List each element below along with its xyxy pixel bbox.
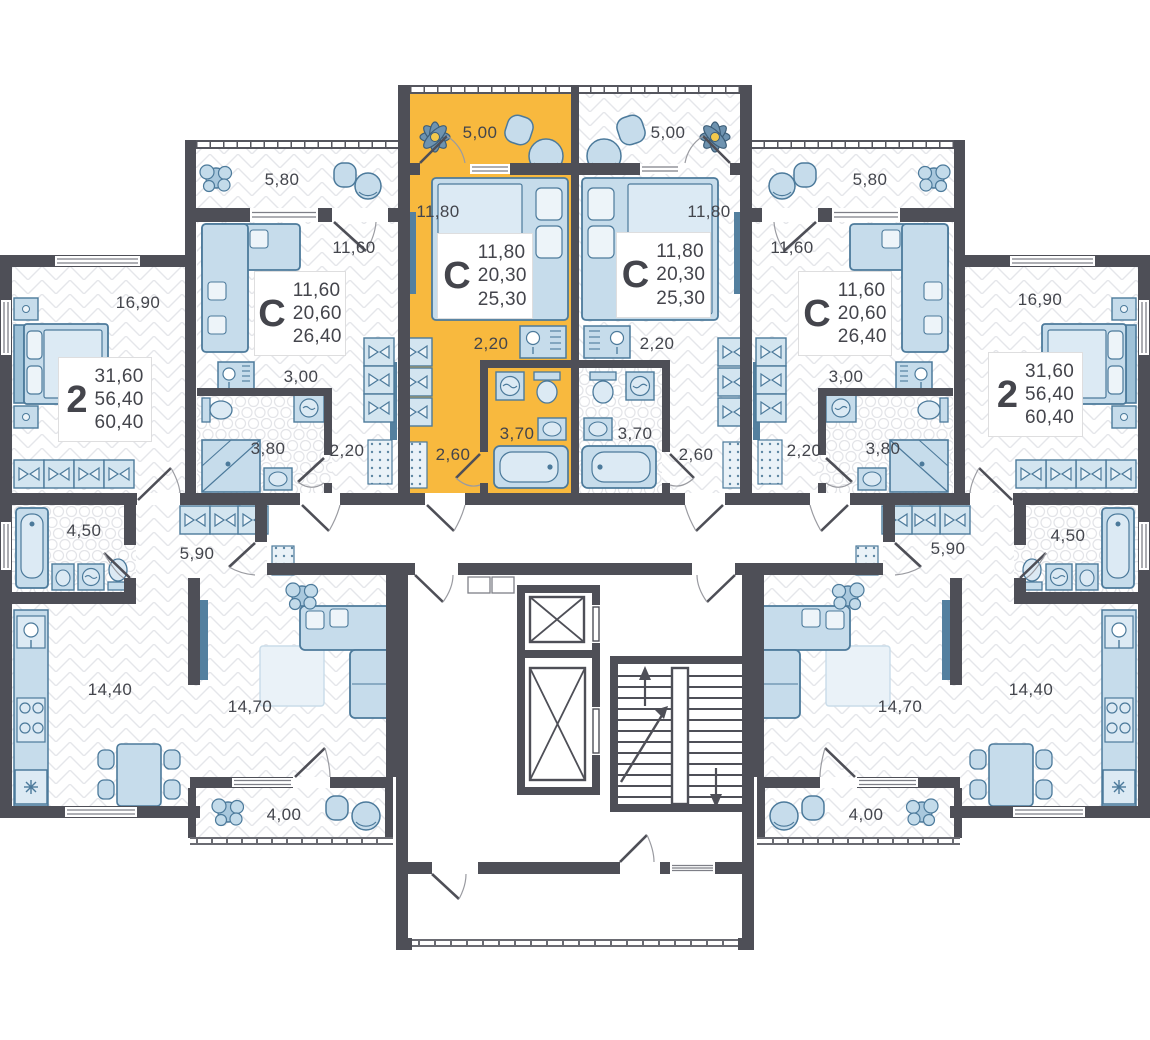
room-area-label: 2,60	[436, 445, 471, 465]
apartment-card-studio-right[interactable]: С 11,80 20,3025,30	[616, 232, 711, 318]
room-area-label: 3,70	[618, 424, 653, 444]
room-area-label: 3,80	[866, 439, 901, 459]
apartment-areas: 31,60 56,4060,40	[95, 365, 144, 435]
elevator-icon	[530, 597, 584, 642]
room-area-label: 2,20	[474, 334, 509, 354]
elevator-icon	[530, 668, 585, 780]
room-area-label: 14,40	[1009, 680, 1054, 700]
apartment-type: С	[258, 295, 285, 333]
room-area-label: 4,50	[67, 521, 102, 541]
apartment-card-studio-left[interactable]: С 11,80 20,3025,30	[437, 233, 533, 319]
room-area-label: 5,90	[931, 539, 966, 559]
room-area-label: 3,00	[829, 367, 864, 387]
room-area-label: 11,80	[687, 202, 730, 222]
room-area-label: 14,40	[88, 680, 133, 700]
room-area-label: 11,60	[332, 238, 375, 258]
room-area-label: 4,00	[267, 805, 302, 825]
room-area-label: 16,90	[1018, 290, 1063, 310]
room-area-label: 14,70	[228, 697, 273, 717]
floor-plan: 16,90 4,50 5,90 14,40 14,70 4,00 5,80 11…	[0, 0, 1150, 1040]
elevator-door	[593, 709, 599, 753]
elevator-door	[593, 607, 599, 641]
room-area-label: 3,80	[251, 439, 286, 459]
apartment-areas: 31,60 56,4060,40	[1025, 360, 1074, 430]
apartment-type: С	[622, 256, 649, 294]
apartment-card-c-left[interactable]: С 11,60 20,6026,40	[254, 271, 346, 356]
lobby-glass-door	[492, 577, 514, 593]
apartment-areas: 11,60 20,6026,40	[293, 279, 342, 349]
room-area-label: 5,80	[853, 170, 888, 190]
room-area-label: 16,90	[116, 293, 161, 313]
room-area-label: 5,00	[651, 123, 686, 143]
room-area-label: 5,80	[265, 170, 300, 190]
apartment-areas: 11,60 20,6026,40	[838, 279, 887, 349]
apartment-type: 2	[997, 376, 1018, 414]
window	[670, 863, 715, 873]
apartment-type: 2	[66, 381, 87, 419]
apartment-card-two-left[interactable]: 2 31,60 56,4060,40	[58, 357, 152, 442]
apartment-card-c-right[interactable]: С 11,60 20,6026,40	[798, 271, 892, 356]
room-area-label: 2,20	[330, 441, 365, 461]
apartment-card-two-right[interactable]: 2 31,60 56,4060,40	[988, 352, 1083, 437]
lobby-glass-door	[468, 577, 490, 593]
room-area-label: 11,60	[770, 238, 813, 258]
room-area-label: 2,20	[787, 441, 822, 461]
room-area-label: 3,00	[284, 367, 319, 387]
room-area-label: 2,20	[640, 334, 675, 354]
apartment-areas: 11,80 20,3025,30	[656, 240, 705, 310]
room-area-label: 14,70	[878, 697, 923, 717]
room-area-label: 11,80	[416, 202, 459, 222]
apartment-type: С	[803, 295, 830, 333]
room-area-label: 4,50	[1051, 526, 1086, 546]
apartment-areas: 11,80 20,3025,30	[478, 241, 527, 311]
room-area-label: 3,70	[500, 424, 535, 444]
room-area-label: 5,90	[180, 544, 215, 564]
room-area-label: 5,00	[463, 123, 498, 143]
room-area-label: 4,00	[849, 805, 884, 825]
room-area-label: 2,60	[679, 445, 714, 465]
apartment-type: С	[443, 257, 470, 295]
